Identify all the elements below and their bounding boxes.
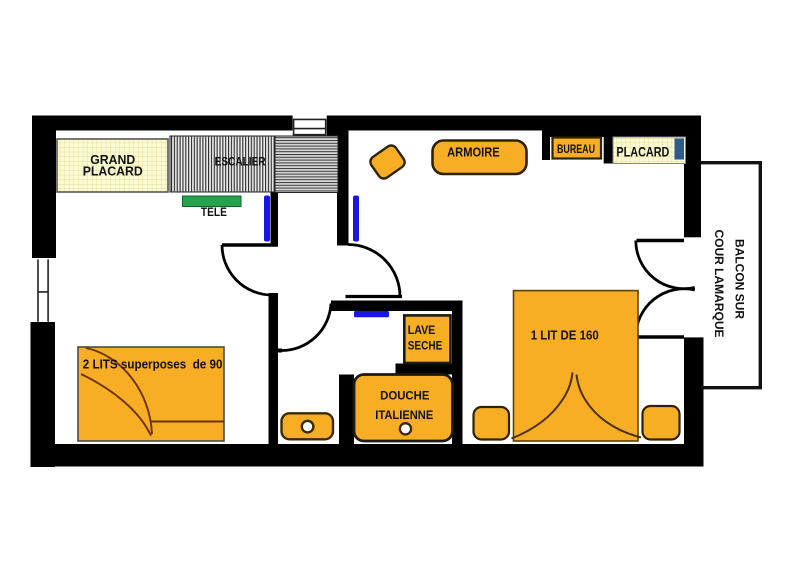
svg-text:COUR LAMARQUE: COUR LAMARQUE (712, 230, 726, 338)
svg-text:TELE: TELE (201, 205, 227, 219)
svg-text:ITALIENNE: ITALIENNE (375, 410, 433, 422)
svg-text:LAVE: LAVE (408, 325, 436, 337)
svg-text:PLACARD: PLACARD (616, 143, 669, 159)
svg-text:SECHE: SECHE (408, 341, 443, 353)
svg-text:DOUCHE: DOUCHE (380, 391, 430, 403)
svg-text:BUREAU: BUREAU (557, 144, 595, 156)
svg-text:2 LITS superposes de 90: 2 LITS superposes de 90 (83, 357, 223, 372)
svg-text:BALCON SUR: BALCON SUR (733, 239, 747, 319)
svg-text:ESCALIER: ESCALIER (215, 156, 267, 168)
svg-text:ARMOIRE: ARMOIRE (447, 145, 500, 160)
svg-text:1 LIT DE 160: 1 LIT DE 160 (531, 329, 599, 343)
svg-text:PLACARD: PLACARD (83, 164, 143, 179)
